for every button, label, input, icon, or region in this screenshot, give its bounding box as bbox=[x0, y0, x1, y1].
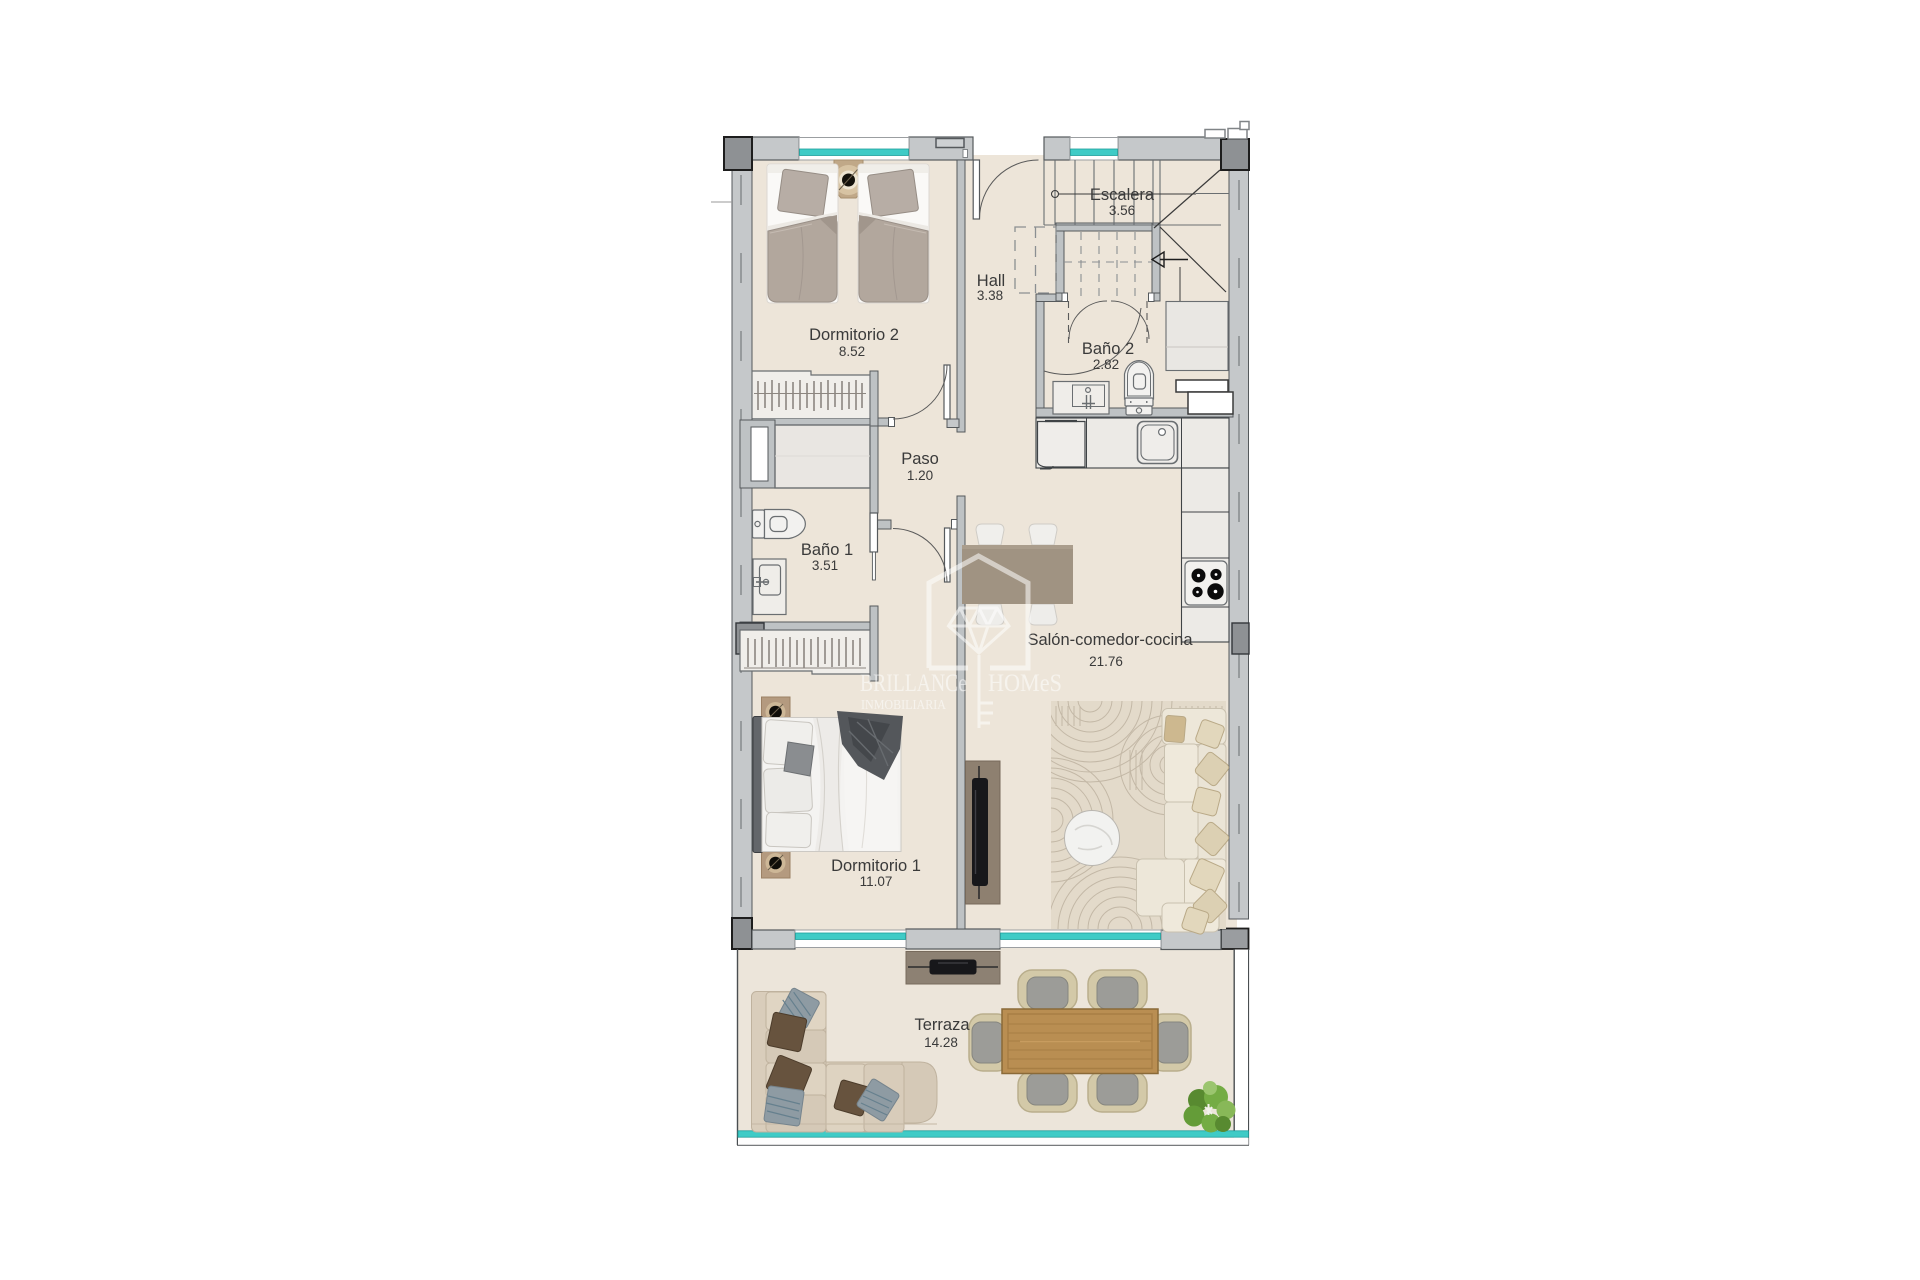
svg-text:8.52: 8.52 bbox=[839, 344, 865, 359]
svg-text:BRILLANCe: BRILLANCe bbox=[860, 670, 967, 697]
svg-text:INMOBILIARIA: INMOBILIARIA bbox=[861, 697, 946, 712]
svg-text:Baño 1: Baño 1 bbox=[801, 541, 853, 559]
svg-text:Escalera: Escalera bbox=[1090, 186, 1155, 204]
svg-text:Terraza: Terraza bbox=[914, 1016, 970, 1034]
svg-text:3.51: 3.51 bbox=[812, 558, 838, 573]
svg-text:Baño 2: Baño 2 bbox=[1082, 340, 1134, 358]
svg-text:2.82: 2.82 bbox=[1093, 357, 1119, 372]
svg-text:Dormitorio 1: Dormitorio 1 bbox=[831, 857, 921, 875]
svg-text:11.07: 11.07 bbox=[860, 874, 893, 889]
svg-text:3.38: 3.38 bbox=[977, 288, 1003, 303]
svg-text:14.28: 14.28 bbox=[924, 1035, 958, 1050]
svg-text:Salón-comedor-cocina: Salón-comedor-cocina bbox=[1027, 631, 1193, 649]
svg-text:Paso: Paso bbox=[901, 450, 939, 468]
svg-text:HOMeS: HOMeS bbox=[988, 670, 1062, 697]
svg-text:Dormitorio 2: Dormitorio 2 bbox=[809, 326, 899, 344]
svg-text:1.20: 1.20 bbox=[907, 468, 933, 483]
svg-text:21.76: 21.76 bbox=[1089, 654, 1123, 669]
svg-text:3.56: 3.56 bbox=[1109, 203, 1135, 218]
